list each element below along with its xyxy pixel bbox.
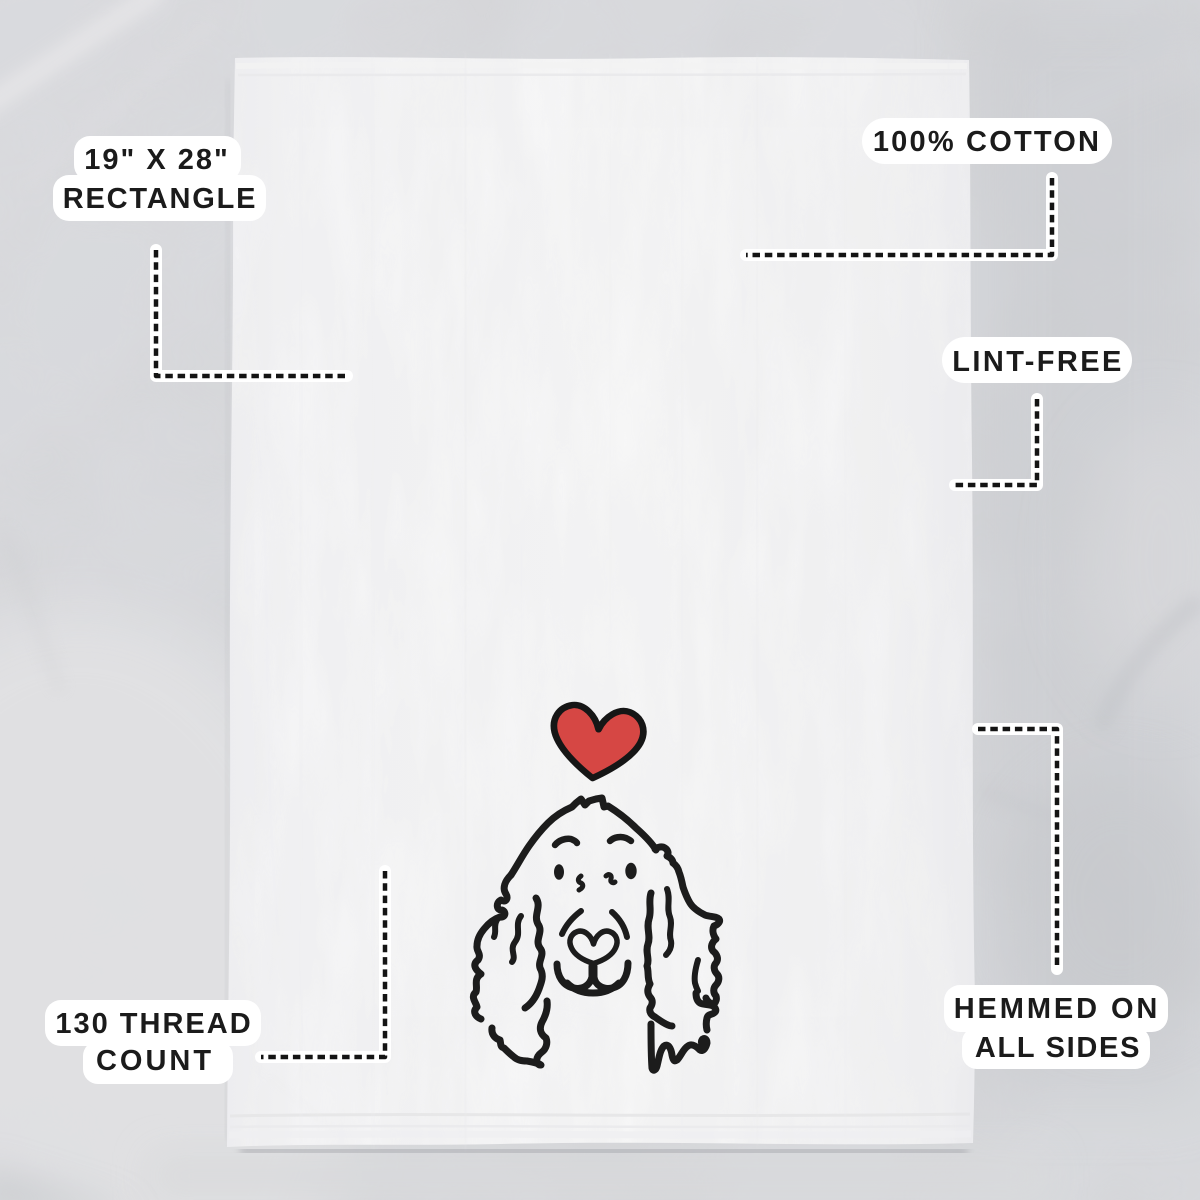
svg-text:RECTANGLE: RECTANGLE — [63, 183, 258, 215]
svg-text:100% COTTON: 100% COTTON — [873, 126, 1101, 158]
svg-text:HEMMED ON: HEMMED ON — [954, 993, 1161, 1025]
svg-text:19" X 28": 19" X 28" — [84, 144, 229, 176]
svg-text:ALL SIDES: ALL SIDES — [975, 1032, 1141, 1064]
svg-text:LINT-FREE: LINT-FREE — [952, 346, 1123, 378]
svg-text:130 THREAD: 130 THREAD — [55, 1008, 252, 1040]
svg-text:COUNT: COUNT — [96, 1045, 214, 1077]
